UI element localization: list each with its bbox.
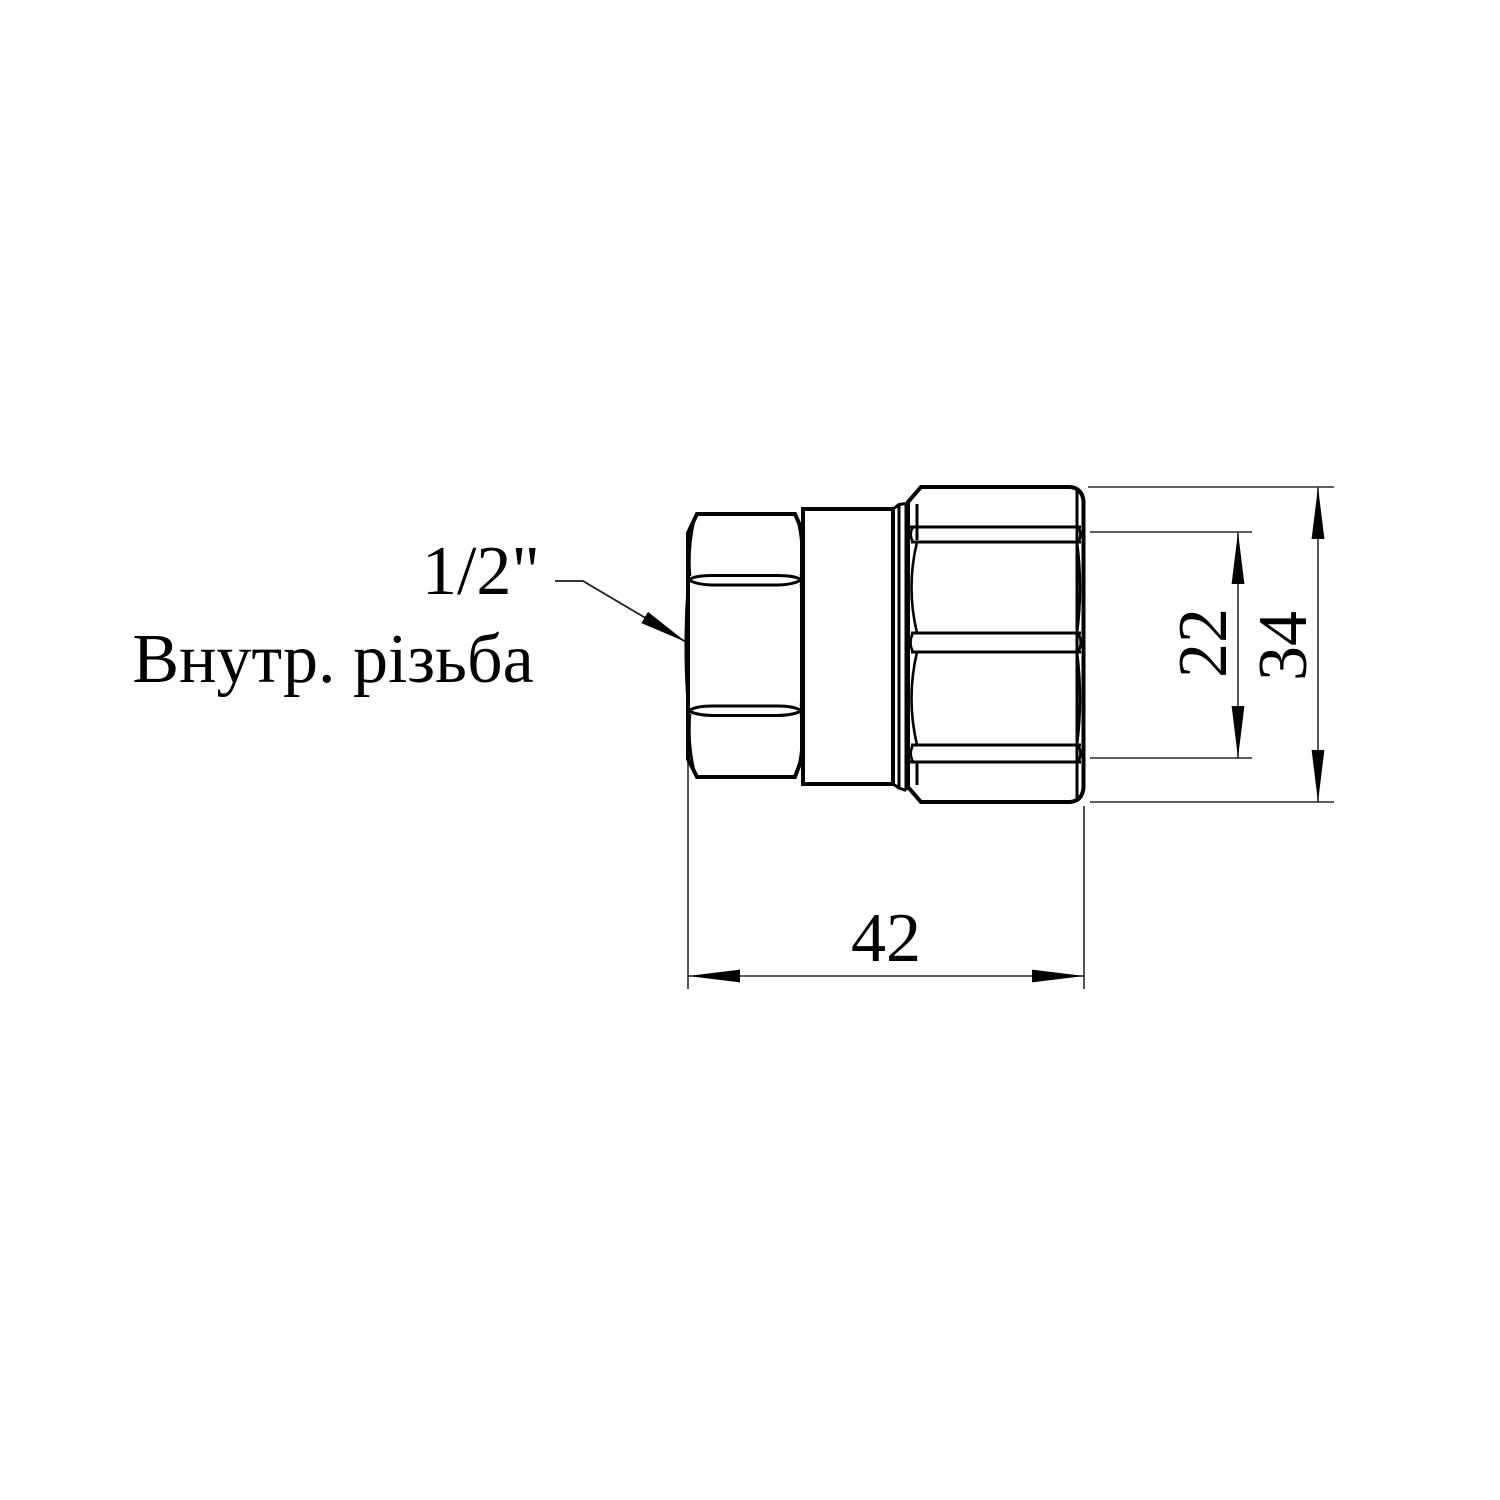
leader-line [555,581,686,642]
body-cylinder [803,509,893,784]
dim-42-arrow-right [1032,970,1084,983]
dim-22-text: 22 [1169,543,1239,743]
fitting-diagram [0,0,1500,1500]
right-hex-outline [908,487,1084,802]
dim-42-arrow-left [688,970,740,983]
left-hex-outline [688,514,802,777]
callout-thread-label: Внутр. різьба [113,625,553,695]
drawing-canvas: 1/2" Внутр. різьба 42 22 34 [0,0,1500,1500]
dim-34-arrow-top [1312,487,1325,539]
right-hex-nut [908,487,1084,802]
dim-34-arrow-bottom [1312,750,1325,802]
dim-34-text: 34 [1249,546,1319,746]
left-hex-nut [686,514,804,777]
dim-42-text: 42 [786,904,986,974]
leader-arrow [641,612,686,642]
callout-thread-size: 1/2" [340,537,540,607]
